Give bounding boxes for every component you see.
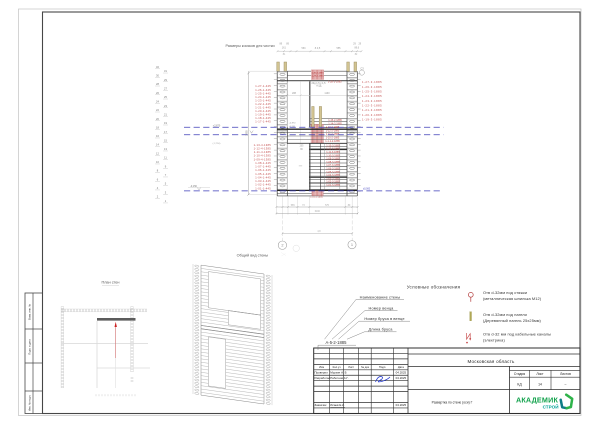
- svg-text:1-05-1-445: 1-05-1-445: [255, 172, 271, 176]
- svg-text:1-21-1-445: 1-21-1-445: [255, 106, 271, 110]
- svg-text:1-25-3-1885: 1-25-3-1885: [362, 90, 382, 94]
- svg-text:1-19-3-1885: 1-19-3-1885: [362, 117, 382, 121]
- svg-text:1-28-2-1885: 1-28-2-1885: [328, 80, 342, 83]
- svg-text:1-26-3-1885: 1-26-3-1885: [362, 85, 382, 89]
- svg-text:Кол.уч: Кол.уч: [333, 365, 342, 369]
- svg-text:Подп. и дата: Подп. и дата: [28, 339, 32, 355]
- svg-text:±0,000: ±0,000: [363, 188, 371, 190]
- svg-text:(металлическая шпилька М12): (металлическая шпилька М12): [483, 296, 542, 301]
- svg-text:2985: 2985: [245, 130, 248, 136]
- svg-text:Инв. № подл.: Инв. № подл.: [28, 395, 32, 411]
- svg-text:1-01-2-1885: 1-01-2-1885: [310, 197, 323, 199]
- svg-text:1-26-1-445: 1-26-1-445: [255, 88, 271, 92]
- svg-text:Номер венца: Номер венца: [369, 305, 395, 310]
- svg-text:Наименование стены: Наименование стены: [360, 294, 401, 299]
- svg-text:+2,970: +2,970: [289, 123, 297, 125]
- svg-text:Номер бруса в венце: Номер бруса в венце: [364, 316, 404, 321]
- svg-text:1-08-1-445: 1-08-1-445: [255, 161, 271, 165]
- svg-text:1-07-1-445: 1-07-1-445: [255, 165, 271, 169]
- svg-text:1-10-4-1385: 1-10-4-1385: [254, 154, 272, 158]
- svg-text:Стадия: Стадия: [514, 372, 525, 376]
- svg-text:1-02-1-445: 1-02-1-445: [255, 183, 271, 187]
- svg-text:555: 555: [337, 47, 342, 50]
- svg-text:А-5-2-1885: А-5-2-1885: [326, 340, 348, 345]
- svg-text:288: 288: [292, 92, 297, 95]
- svg-text:СТРОЙ: СТРОЙ: [543, 402, 559, 409]
- svg-text:1-06-1-445: 1-06-1-445: [255, 168, 271, 172]
- svg-text:1-19-1-445: 1-19-1-445: [255, 113, 271, 117]
- svg-text:1-23-1-445: 1-23-1-445: [255, 98, 271, 102]
- svg-text:1-17-1-445: 1-17-1-445: [255, 120, 271, 124]
- svg-text:1-18-1-445: 1-18-1-445: [255, 116, 271, 120]
- svg-text:2: 2: [281, 243, 283, 248]
- svg-text:Мурзин А. Б: Мурзин А. Б: [330, 371, 346, 375]
- svg-text:(Деревянный нагель 25х25мм): (Деревянный нагель 25х25мм): [483, 318, 542, 323]
- svg-text:Взам. инв. №: Взам. инв. №: [28, 304, 32, 320]
- svg-text:1-23-3-1885: 1-23-3-1885: [362, 99, 382, 103]
- svg-text:Отв d-32 мм под кабельные кан: Отв d-32 мм под кабельные каналы: [483, 332, 551, 337]
- svg-text:1-01-1-445: 1-01-1-445: [255, 186, 271, 190]
- svg-text:Размеры косяков для чистки: Размеры косяков для чистки: [225, 44, 274, 48]
- svg-text:АКАДЕМИК: АКАДЕМИК: [516, 395, 559, 404]
- svg-text:1: 1: [351, 242, 353, 247]
- svg-text:(электрика): (электрика): [483, 338, 505, 343]
- svg-text:1-20-1-445: 1-20-1-445: [255, 109, 271, 113]
- svg-text:1-29-2-1885: 1-29-2-1885: [312, 76, 325, 78]
- svg-text:Общий вид стены: Общий вид стены: [237, 253, 269, 257]
- svg-text:6190: 6190: [315, 211, 321, 213]
- svg-text:Работнов А.Г.: Работнов А.Г.: [330, 376, 348, 380]
- svg-text:Отв d-32мм под нагели: Отв d-32мм под нагели: [483, 312, 527, 317]
- svg-text:1-24-1-445: 1-24-1-445: [255, 95, 271, 99]
- svg-text:С3: С3: [360, 66, 364, 70]
- svg-text:1-22-1-445: 1-22-1-445: [255, 102, 271, 106]
- svg-text:20д 1,5 х 1,5: 20д 1,5 х 1,5: [312, 82, 327, 85]
- svg-text:Листов: Листов: [560, 372, 571, 376]
- svg-text:1-1-1-2-1885: 1-1-1-2-1885: [325, 140, 340, 143]
- svg-text:1-04-1-445: 1-04-1-445: [255, 175, 271, 179]
- svg-text:Лист: Лист: [348, 365, 355, 369]
- svg-text:1-27-3-1885: 1-27-3-1885: [362, 80, 382, 84]
- svg-text:1-22-3-1885: 1-22-3-1885: [362, 103, 382, 107]
- svg-text:04.2025: 04.2025: [396, 371, 407, 375]
- svg-text:Развертка по стене (оси) Г: Развертка по стене (оси) Г: [432, 400, 473, 404]
- svg-text:1190: 1190: [324, 92, 330, 95]
- svg-text:Разработал: Разработал: [315, 376, 331, 380]
- svg-text:–: –: [565, 382, 567, 386]
- svg-text:1-13-4-1385: 1-13-4-1385: [254, 143, 272, 147]
- svg-text:1-14-2-1885: 1-14-2-1885: [328, 123, 342, 126]
- svg-text:Заказчик: Заказчик: [315, 403, 328, 407]
- svg-text:1-24-3-1885: 1-24-3-1885: [362, 94, 382, 98]
- svg-text:Условные обозначения: Условные обозначения: [407, 285, 461, 290]
- svg-text:1-11-4-1385: 1-11-4-1385: [254, 150, 271, 154]
- svg-text:1-27-1-445: 1-27-1-445: [255, 84, 271, 88]
- svg-text:А-2Д: А-2Д: [316, 85, 322, 88]
- svg-text:1-30-2-1885: 1-30-2-1885: [312, 72, 325, 74]
- svg-text:Подп.: Подп.: [379, 365, 386, 369]
- svg-text:1-09-4-1385: 1-09-4-1385: [254, 157, 272, 161]
- svg-text:План стен: План стен: [101, 281, 119, 285]
- svg-text:КД: КД: [517, 382, 522, 386]
- svg-text:04.2025: 04.2025: [396, 403, 407, 407]
- svg-text:Изм: Изм: [319, 365, 324, 369]
- svg-text:14: 14: [538, 382, 542, 386]
- svg-text:1-12-4-1385: 1-12-4-1385: [254, 146, 272, 150]
- svg-text:04.2025: 04.2025: [396, 376, 407, 380]
- svg-text:Лист: Лист: [536, 372, 544, 376]
- svg-text:161: 161: [282, 46, 287, 49]
- svg-text:1-01-3-1885: 1-01-3-1885: [326, 184, 340, 187]
- svg-text:89,6: 89,6: [354, 46, 359, 49]
- svg-text:Отв d-32мм под стяжки: Отв d-32мм под стяжки: [483, 290, 527, 295]
- svg-text:Проверил: Проверил: [315, 371, 329, 375]
- svg-text:563: 563: [302, 47, 307, 50]
- svg-text:1-25-1-445: 1-25-1-445: [255, 91, 271, 95]
- svg-text:8·0,5: 8·0,5: [315, 47, 321, 50]
- svg-text:Московская область: Московская область: [467, 359, 514, 364]
- svg-text:Длина бруса: Длина бруса: [369, 327, 394, 332]
- svg-text:(-2,750): (-2,750): [213, 143, 221, 145]
- svg-text:Исаев Е.И.: Исаев Е.И.: [330, 403, 345, 407]
- svg-text:1-20-3-1885: 1-20-3-1885: [362, 113, 382, 117]
- svg-text:+2,870: +2,870: [213, 124, 221, 127]
- svg-text:1-03-1-445: 1-03-1-445: [255, 179, 271, 183]
- svg-text:№ док: № док: [361, 366, 370, 369]
- svg-text:Дата: Дата: [398, 365, 404, 369]
- svg-text:1-21-3-1885: 1-21-3-1885: [362, 108, 382, 112]
